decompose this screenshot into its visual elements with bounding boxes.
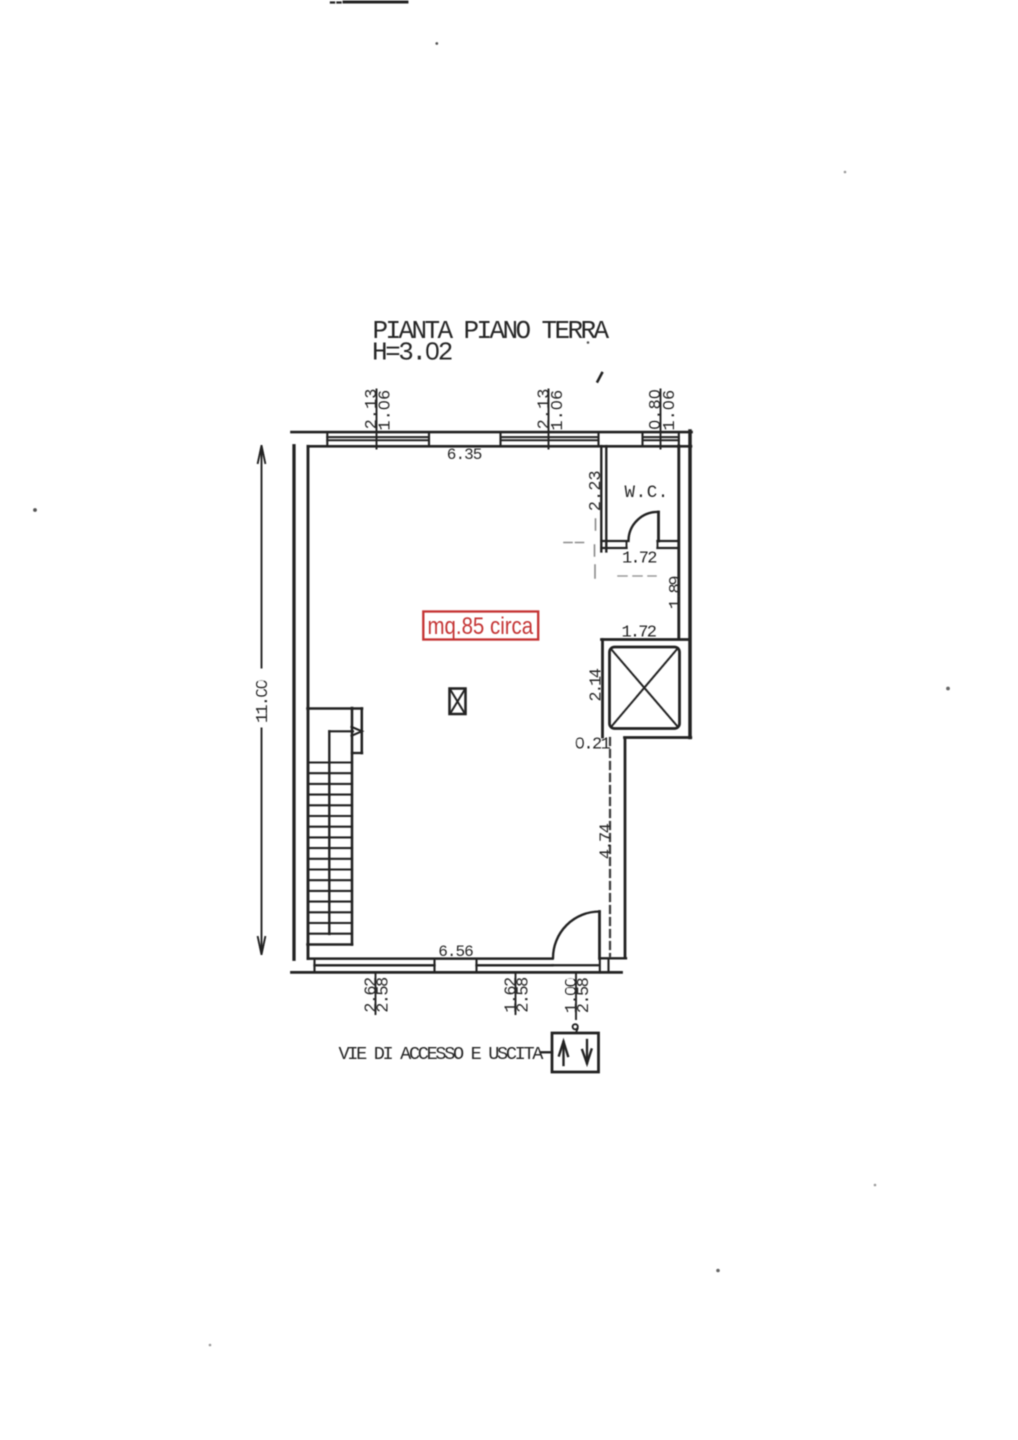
svg-text:1.06: 1.06	[661, 390, 680, 431]
svg-text:mq.85 circa: mq.85 circa	[428, 612, 534, 639]
svg-text:0.21: 0.21	[575, 736, 611, 755]
svg-text:1.72: 1.72	[622, 624, 656, 643]
svg-text:H=3.02: H=3.02	[372, 338, 452, 368]
svg-text:6.56: 6.56	[438, 943, 473, 961]
svg-text:2.58: 2.58	[375, 977, 394, 1013]
svg-text:2.14: 2.14	[588, 668, 607, 701]
svg-text:2.58: 2.58	[575, 977, 594, 1013]
svg-text:2.58: 2.58	[515, 977, 534, 1013]
svg-text:6.35: 6.35	[447, 446, 482, 464]
svg-text:2.23: 2.23	[587, 470, 606, 511]
svg-text:4.74: 4.74	[598, 823, 617, 859]
svg-text:1.89: 1.89	[667, 576, 686, 610]
svg-text:1.72: 1.72	[622, 550, 656, 569]
svg-text:1.06: 1.06	[377, 390, 396, 431]
svg-text:1.06: 1.06	[549, 390, 568, 431]
svg-text:VIE DI ACCESSO E USCITA: VIE DI ACCESSO E USCITA	[339, 1044, 545, 1065]
svg-text:W.C.: W.C.	[625, 483, 669, 503]
svg-text:11.00: 11.00	[254, 679, 273, 723]
